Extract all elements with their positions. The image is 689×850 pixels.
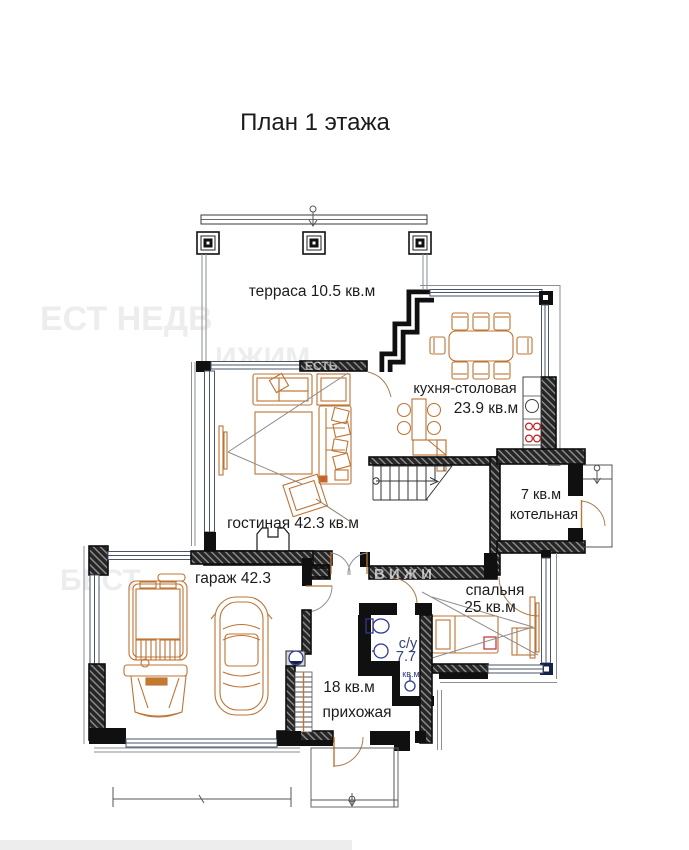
svg-text:ВИЖИ: ВИЖИ [374,566,436,583]
svg-text:7.7: 7.7 [396,649,416,665]
svg-text:кв.м: кв.м [402,669,419,679]
svg-text:гостиная 42.3 кв.м: гостиная 42.3 кв.м [227,515,359,532]
svg-text:кухня-столовая: кухня-столовая [413,381,516,397]
svg-text:ЕСТ НЕДВ: ЕСТ НЕДВ [40,300,213,338]
svg-text:котельная: котельная [510,507,578,523]
svg-text:23.9 кв.м: 23.9 кв.м [454,400,518,417]
svg-text:прихожая: прихожая [322,704,391,721]
svg-text:25 кв.м: 25 кв.м [464,599,516,616]
svg-text:18 кв.м: 18 кв.м [323,679,375,696]
svg-text:терраса 10.5 кв.м: терраса 10.5 кв.м [249,283,376,300]
svg-text:гараж 42.3: гараж 42.3 [195,570,271,587]
svg-text:План 1 этажа: План 1 этажа [240,109,390,136]
svg-text:ИЖИМ: ИЖИМ [215,342,310,375]
svg-text:7 кв.м: 7 кв.м [521,487,561,503]
svg-text:спальня: спальня [466,582,525,599]
svg-text:ЕСТЬ: ЕСТЬ [305,359,338,373]
